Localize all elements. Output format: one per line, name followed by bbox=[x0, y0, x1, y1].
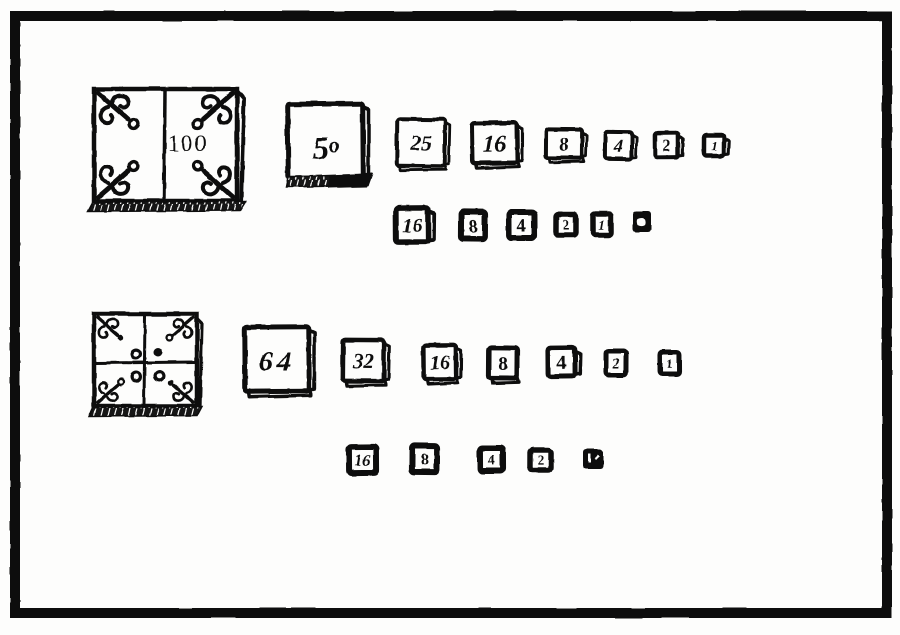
svg-text:8: 8 bbox=[420, 452, 428, 469]
svg-text:1: 1 bbox=[711, 138, 718, 153]
svg-text:16: 16 bbox=[354, 453, 370, 470]
svg-text:1: 1 bbox=[599, 217, 606, 232]
svg-text:2: 2 bbox=[612, 357, 619, 372]
svg-text:100: 100 bbox=[168, 131, 209, 156]
svg-text:8: 8 bbox=[468, 216, 477, 236]
svg-text:16: 16 bbox=[482, 131, 506, 157]
svg-text:32: 32 bbox=[351, 348, 374, 373]
svg-text:1: 1 bbox=[666, 356, 673, 371]
svg-text:8: 8 bbox=[498, 354, 508, 375]
svg-text:4: 4 bbox=[488, 453, 496, 469]
svg-text:25: 25 bbox=[409, 130, 432, 155]
svg-text:64: 64 bbox=[259, 346, 296, 378]
svg-text:4: 4 bbox=[613, 136, 624, 157]
svg-text:4: 4 bbox=[557, 353, 567, 374]
svg-text:16: 16 bbox=[402, 215, 422, 237]
svg-text:16: 16 bbox=[430, 352, 450, 374]
svg-text:2: 2 bbox=[537, 453, 544, 468]
svg-text:8: 8 bbox=[559, 134, 569, 156]
svg-text:4: 4 bbox=[517, 215, 526, 235]
svg-text:2: 2 bbox=[662, 138, 670, 155]
svg-text:2: 2 bbox=[562, 219, 569, 234]
